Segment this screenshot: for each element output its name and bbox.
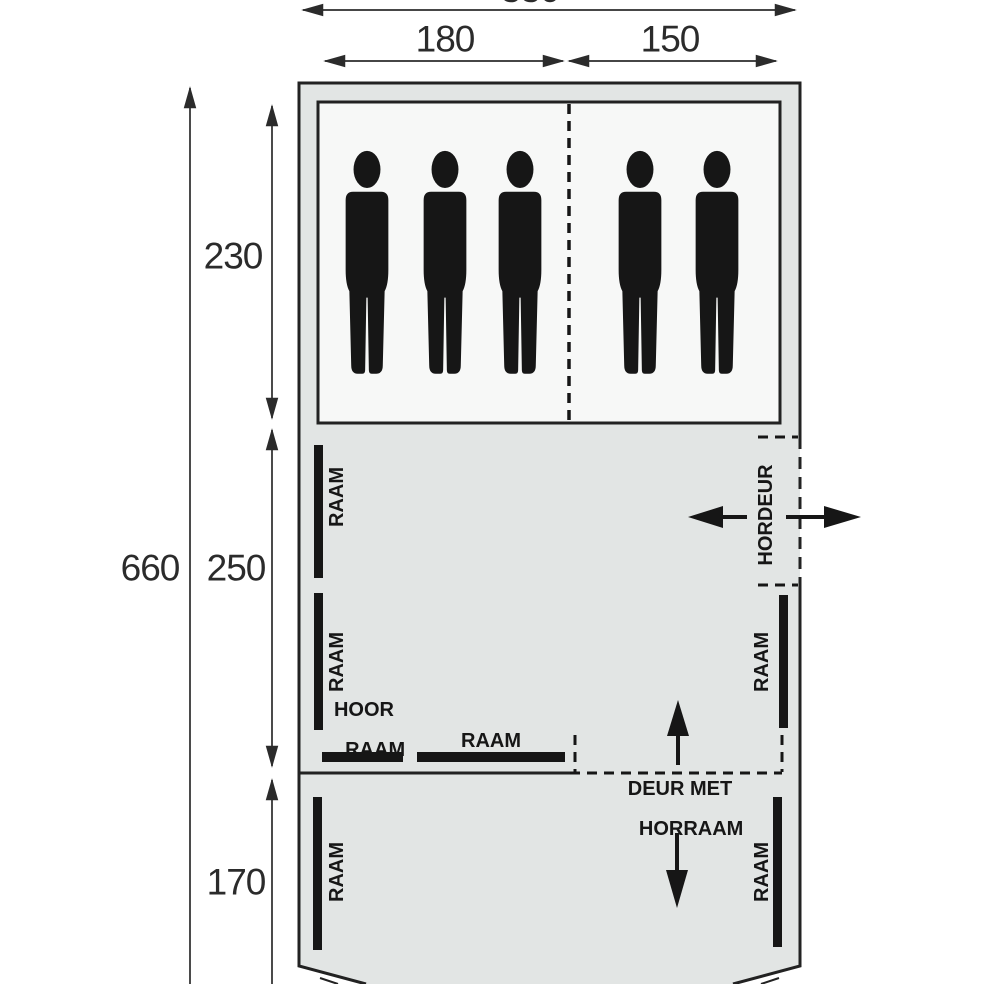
window-bar: [773, 797, 782, 947]
dim-width-left: 180: [416, 21, 475, 58]
window-bar: [417, 752, 565, 762]
sleeping-left-section: [346, 151, 542, 374]
dim-length-living: 250: [207, 550, 266, 587]
front-door-label-line2: HORRAAM: [639, 818, 743, 840]
screen-window-label-line1: HOOR: [334, 699, 394, 721]
window-label: RAAM: [752, 632, 772, 692]
tent-floorplan: 330 180 150 660 230 250 170 RAAM RAAM RA…: [0, 0, 984, 984]
floorplan-graphics: [0, 0, 984, 984]
screen-door-label: HORDEUR: [756, 464, 776, 565]
dim-width-right: 150: [641, 21, 700, 58]
window-bar: [313, 797, 322, 950]
window-label: RAAM: [461, 731, 521, 751]
window-bar: [779, 595, 788, 728]
window-label: RAAM: [752, 842, 772, 902]
front-door-label: DEUR MET HORRAAM: [617, 779, 744, 839]
screen-window-label-line2: RAAM: [345, 739, 405, 761]
window-bar: [314, 445, 323, 578]
dim-length-front: 170: [207, 864, 266, 901]
window-label: RAAM: [327, 632, 347, 692]
window-label: RAAM: [327, 467, 347, 527]
dim-width-total: 330: [501, 0, 560, 8]
dim-length-total: 660: [121, 550, 180, 587]
window-label: RAAM: [327, 842, 347, 902]
screen-window-label: HOOR RAAM: [323, 700, 405, 760]
window-bar: [314, 593, 323, 730]
dim-length-sleeping: 230: [204, 238, 263, 275]
front-door-label-line1: DEUR MET: [628, 778, 732, 800]
